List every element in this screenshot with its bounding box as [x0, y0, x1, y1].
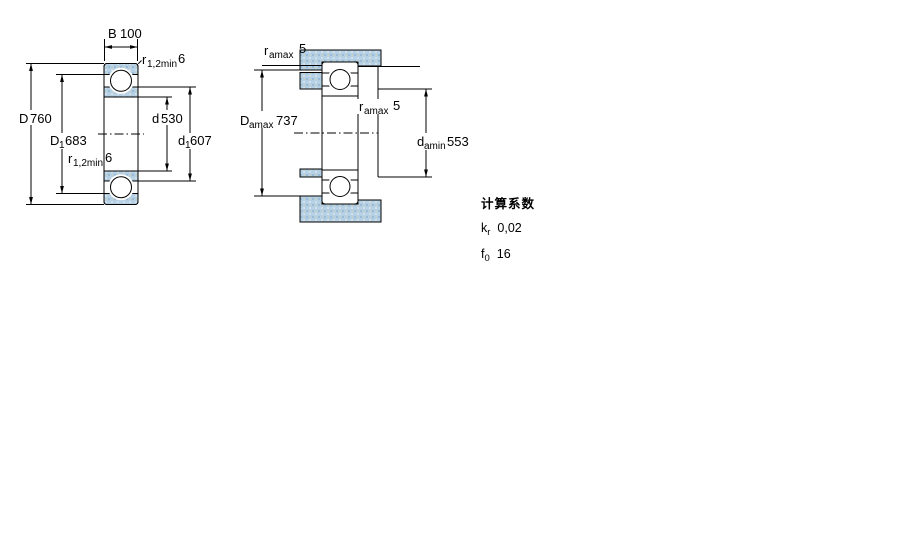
svg-text:530: 530 — [161, 111, 183, 126]
svg-text:D: D — [240, 113, 249, 128]
ball-top — [111, 70, 132, 91]
dimension-arrow-D — [29, 64, 33, 205]
shaft-shoulder-bottom — [300, 169, 322, 177]
ball-top — [330, 70, 350, 90]
factor-row-kr: kr0,02 — [481, 221, 641, 238]
svg-text:760: 760 — [30, 111, 52, 126]
dimension-arrow-Damax — [260, 70, 264, 196]
svg-text:d: d — [152, 111, 159, 126]
dimension-arrow-B — [105, 45, 138, 49]
dimension-arrow-d — [165, 97, 169, 171]
svg-text:amax: amax — [269, 50, 293, 61]
svg-text:553: 553 — [447, 134, 469, 149]
shaft-shoulder-top — [300, 73, 322, 90]
ball-bottom — [111, 177, 132, 198]
calculation-factors-title: 计算系数 — [481, 193, 641, 212]
left-section-view: B 100 r 1,2min 6 D 760 D 1 683 d 530 d 1… — [17, 26, 214, 205]
svg-text:5: 5 — [393, 98, 400, 113]
svg-text:amax: amax — [364, 106, 388, 117]
factor-row-f0: f016 — [481, 247, 641, 264]
bearing-cross-section-left — [98, 64, 144, 205]
svg-text:D: D — [19, 111, 28, 126]
svg-text:1,2min: 1,2min — [73, 158, 103, 169]
svg-text:6: 6 — [105, 150, 112, 165]
drawing-canvas: B 100 r 1,2min 6 D 760 D 1 683 d 530 d 1… — [0, 0, 900, 560]
svg-text:607: 607 — [190, 133, 212, 148]
dim-label-B: B 100 — [108, 26, 142, 41]
svg-text:6: 6 — [178, 51, 185, 66]
dim-label-d: d 530 — [152, 111, 183, 126]
svg-text:amax: amax — [249, 120, 273, 131]
dim-label-D: D 760 — [19, 111, 52, 126]
svg-text:683: 683 — [65, 133, 87, 148]
svg-text:5: 5 — [299, 41, 306, 56]
calculation-factors: 计算系数 kr0,02 f016 — [481, 193, 641, 264]
svg-text:amin: amin — [424, 141, 446, 152]
ball-bottom — [330, 177, 350, 197]
dim-label-r12min-top: r 1,2min 6 — [142, 51, 185, 70]
leader-r-top — [138, 61, 141, 64]
svg-text:1,2min: 1,2min — [147, 59, 177, 70]
svg-text:100: 100 — [120, 26, 142, 41]
svg-text:737: 737 — [276, 113, 298, 128]
svg-text:D: D — [50, 133, 59, 148]
right-mounting-view: r amax 5 D amax 737 r amax 5 d amin 553 — [237, 41, 471, 222]
svg-text:B: B — [108, 26, 117, 41]
bearing-dimension-drawing: B 100 r 1,2min 6 D 760 D 1 683 d 530 d 1… — [0, 0, 900, 560]
